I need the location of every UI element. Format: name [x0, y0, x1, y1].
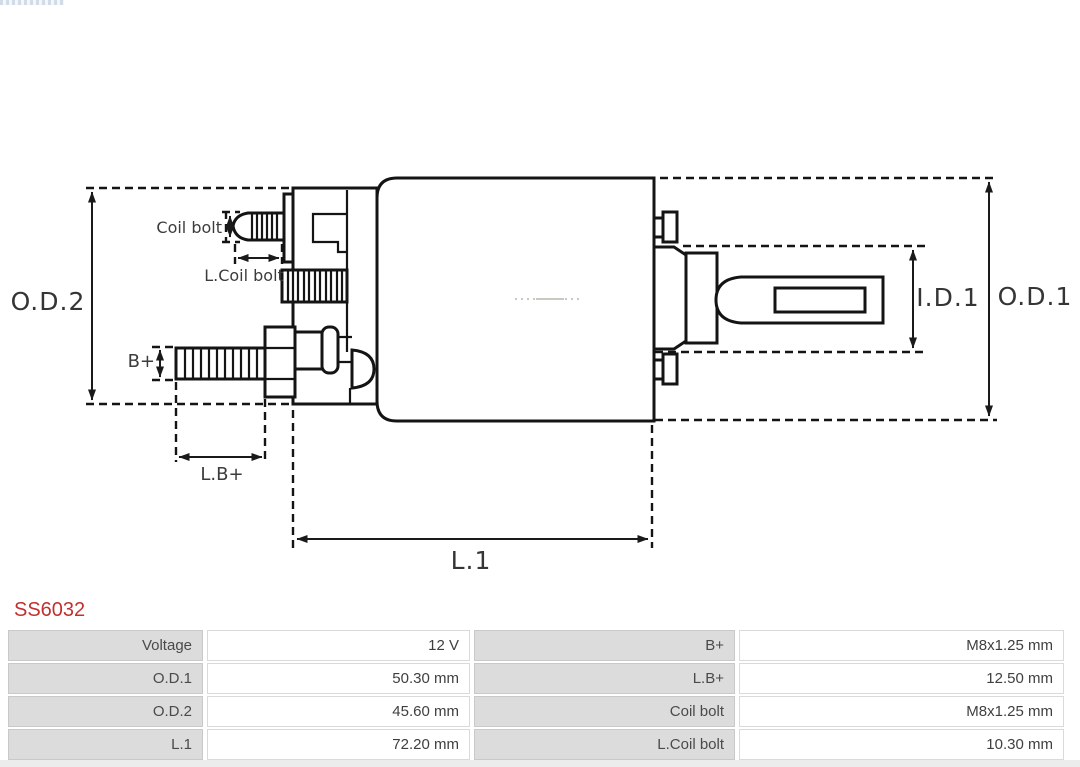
part-number-heading: SS6032	[14, 599, 85, 622]
coil-thread-block-drawing	[282, 270, 347, 302]
solenoid-body-drawing	[176, 178, 883, 421]
coil-bolt-label: Coil bolt	[156, 218, 222, 237]
specifications-table: Voltage 12 V B+ M8x1.25 mm O.D.1 50.30 m…	[8, 630, 1064, 760]
spec-value: 10.30 mm	[739, 729, 1064, 760]
spec-value: 12 V	[207, 630, 470, 661]
od1-label: O.D.1	[998, 282, 1073, 311]
od2-label: O.D.2	[11, 287, 86, 316]
l-coil-bolt-label: L.Coil bolt	[204, 266, 284, 285]
spec-label: L.B+	[474, 663, 735, 694]
l1-label: L.1	[451, 546, 492, 575]
spec-label: L.Coil bolt	[474, 729, 735, 760]
solenoid-technical-drawing: O.D.2 O.D.1 I.D.1 L.1 Coil bolt L.Coil b…	[0, 0, 1080, 600]
spec-value: 50.30 mm	[207, 663, 470, 694]
l-b-plus-label: L.B+	[200, 464, 243, 485]
spec-label: L.1	[8, 729, 203, 760]
b-plus-label: B+	[128, 351, 155, 372]
coil-bolt-drawing	[233, 213, 284, 240]
spec-value: 72.20 mm	[207, 729, 470, 760]
next-row-edge	[0, 760, 1080, 767]
spec-value: 12.50 mm	[739, 663, 1064, 694]
id1-label: I.D.1	[916, 283, 979, 312]
plunger-drawing	[654, 247, 883, 349]
spec-label: Coil bolt	[474, 696, 735, 727]
spec-label: O.D.1	[8, 663, 203, 694]
spec-value: M8x1.25 mm	[739, 696, 1064, 727]
spec-label: O.D.2	[8, 696, 203, 727]
spec-label: B+	[474, 630, 735, 661]
spec-value: 45.60 mm	[207, 696, 470, 727]
spec-label: Voltage	[8, 630, 203, 661]
spec-value: M8x1.25 mm	[739, 630, 1064, 661]
